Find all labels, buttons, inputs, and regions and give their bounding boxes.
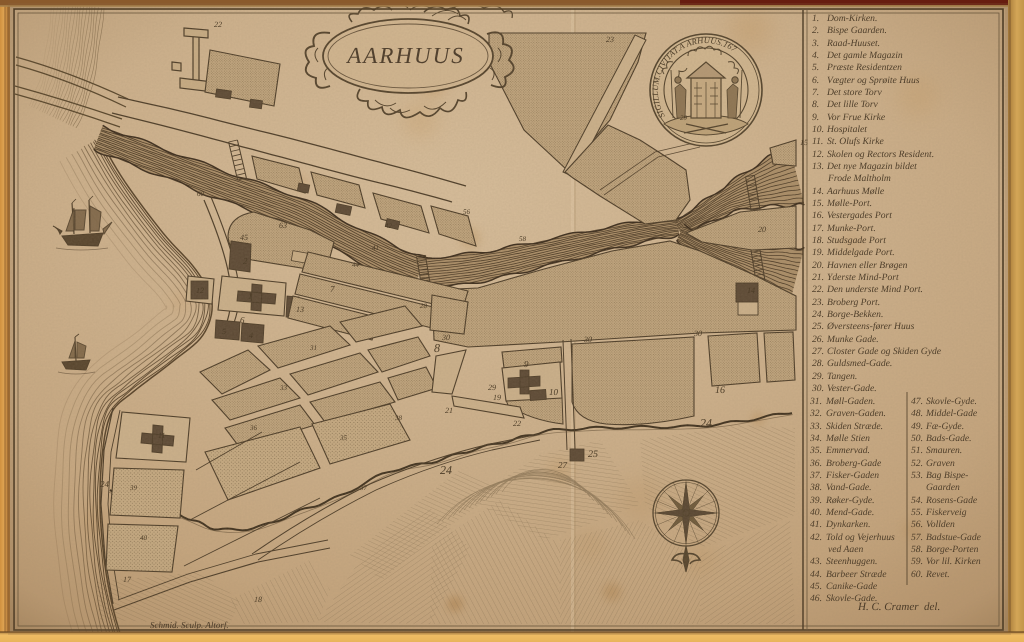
svg-text:49.: 49. xyxy=(911,421,923,432)
svg-text:12.: 12. xyxy=(812,149,824,160)
svg-text:18.: 18. xyxy=(812,235,824,246)
svg-text:44.: 44. xyxy=(810,569,822,580)
svg-text:Munke Gade.: Munke Gade. xyxy=(826,334,879,345)
svg-text:Vand-Gade.: Vand-Gade. xyxy=(826,482,872,493)
svg-text:4.: 4. xyxy=(812,50,819,61)
svg-text:Skiden Stræde.: Skiden Stræde. xyxy=(826,421,883,432)
svg-text:Mend-Gade.: Mend-Gade. xyxy=(825,507,874,518)
svg-text:9.: 9. xyxy=(812,112,819,123)
svg-text:2.: 2. xyxy=(812,25,819,36)
svg-text:Broberg Port.: Broberg Port. xyxy=(827,297,880,308)
svg-text:Havnen eller Brøgen: Havnen eller Brøgen xyxy=(826,260,908,271)
svg-text:23.: 23. xyxy=(812,297,824,308)
svg-text:Aarhuus Mølle: Aarhuus Mølle xyxy=(826,186,885,197)
svg-text:Vor Frue Kirke: Vor Frue Kirke xyxy=(827,112,886,123)
svg-text:1.: 1. xyxy=(812,13,819,24)
svg-text:54.: 54. xyxy=(911,495,923,506)
svg-text:28.: 28. xyxy=(812,358,824,369)
svg-text:Det nye Magazin bildet: Det nye Magazin bildet xyxy=(826,161,917,172)
svg-text:Barbeer Stræde: Barbeer Stræde xyxy=(826,569,887,580)
svg-text:Schmid. Sculp. Altorf.: Schmid. Sculp. Altorf. xyxy=(150,620,229,630)
svg-text:Canike-Gade: Canike-Gade xyxy=(826,581,878,592)
svg-text:Fæ-Gyde.: Fæ-Gyde. xyxy=(925,421,964,432)
svg-text:Vor lil. Kirken: Vor lil. Kirken xyxy=(926,556,981,567)
svg-text:8.: 8. xyxy=(812,99,819,110)
svg-text:55.: 55. xyxy=(911,507,923,518)
svg-text:Guldsmed-Gade.: Guldsmed-Gade. xyxy=(827,358,892,369)
svg-text:48.: 48. xyxy=(911,408,923,419)
svg-text:Yderste Mind-Port: Yderste Mind-Port xyxy=(827,272,899,283)
svg-text:Det lille Torv: Det lille Torv xyxy=(826,99,879,110)
svg-text:Vægter og Sprøite Huus: Vægter og Sprøite Huus xyxy=(827,75,920,86)
svg-text:Røker-Gyde.: Røker-Gyde. xyxy=(825,495,875,506)
svg-text:37.: 37. xyxy=(809,470,822,481)
svg-text:27.: 27. xyxy=(812,346,824,357)
svg-text:7.: 7. xyxy=(812,87,819,98)
svg-text:22.: 22. xyxy=(812,284,824,295)
svg-text:Øversteens-fører Huus: Øversteens-fører Huus xyxy=(826,321,915,332)
svg-text:13.: 13. xyxy=(812,161,824,172)
svg-text:ved Aaen: ved Aaen xyxy=(828,544,863,555)
svg-text:56.: 56. xyxy=(911,519,923,530)
svg-text:Gaarden: Gaarden xyxy=(926,482,960,493)
svg-text:Fisker-Gaden: Fisker-Gaden xyxy=(825,470,879,481)
svg-text:14.: 14. xyxy=(812,186,824,197)
svg-text:Bag Bispe-: Bag Bispe- xyxy=(926,470,968,481)
svg-text:Borge-Porten: Borge-Porten xyxy=(926,544,979,555)
svg-text:Mølle-Port.: Mølle-Port. xyxy=(826,198,872,209)
svg-text:Graven: Graven xyxy=(926,458,955,469)
svg-text:15.: 15. xyxy=(812,198,824,209)
svg-text:Closter Gade og Skiden Gyde: Closter Gade og Skiden Gyde xyxy=(827,346,942,357)
svg-text:Borge-Bekken.: Borge-Bekken. xyxy=(827,309,883,320)
svg-text:Studsgade Port: Studsgade Port xyxy=(827,235,886,246)
svg-text:24.: 24. xyxy=(812,309,824,320)
svg-text:34.: 34. xyxy=(809,433,822,444)
svg-text:Mølle Stien: Mølle Stien xyxy=(825,433,870,444)
svg-text:38.: 38. xyxy=(809,482,822,493)
svg-text:Raad-Huuset.: Raad-Huuset. xyxy=(826,38,880,49)
svg-text:Vollden: Vollden xyxy=(926,519,955,530)
svg-text:H. C. Cramer del.: H. C. Cramer del. xyxy=(857,601,940,613)
svg-text:Skovle-Gyde.: Skovle-Gyde. xyxy=(926,396,977,407)
svg-text:16.: 16. xyxy=(812,210,824,221)
svg-text:40.: 40. xyxy=(810,507,822,518)
svg-text:35.: 35. xyxy=(809,445,822,456)
svg-text:58.: 58. xyxy=(911,544,923,555)
svg-text:Steenhuggen.: Steenhuggen. xyxy=(826,556,877,567)
svg-text:11.: 11. xyxy=(812,136,823,147)
svg-text:St. Olufs Kirke: St. Olufs Kirke xyxy=(827,136,885,147)
svg-text:36.: 36. xyxy=(809,458,822,469)
svg-text:53.: 53. xyxy=(911,470,923,481)
svg-text:31.: 31. xyxy=(809,396,822,407)
svg-text:52.: 52. xyxy=(911,458,923,469)
svg-text:Skolen og Rectors Resident.: Skolen og Rectors Resident. xyxy=(827,149,934,160)
svg-text:41.: 41. xyxy=(810,519,822,530)
svg-text:Revet.: Revet. xyxy=(925,569,950,580)
svg-text:29.: 29. xyxy=(812,371,824,382)
svg-text:Munke-Port.: Munke-Port. xyxy=(826,223,876,234)
svg-text:Middelgade Port.: Middelgade Port. xyxy=(826,247,895,258)
svg-text:Møll-Gaden.: Møll-Gaden. xyxy=(825,396,875,407)
svg-text:39.: 39. xyxy=(809,495,822,506)
svg-text:Told og Vejerhuus: Told og Vejerhuus xyxy=(826,532,895,543)
svg-text:Vestergades Port: Vestergades Port xyxy=(827,210,892,221)
svg-text:43.: 43. xyxy=(810,556,822,567)
svg-text:Tangen.: Tangen. xyxy=(827,371,857,382)
svg-text:59.: 59. xyxy=(911,556,923,567)
svg-text:60.: 60. xyxy=(911,569,923,580)
svg-text:50.: 50. xyxy=(911,433,923,444)
svg-text:47.: 47. xyxy=(911,396,923,407)
svg-text:57.: 57. xyxy=(911,532,923,543)
svg-text:Bads-Gade.: Bads-Gade. xyxy=(926,433,972,444)
svg-text:6.: 6. xyxy=(812,75,819,86)
svg-text:Fiskerveig: Fiskerveig xyxy=(925,507,967,518)
svg-text:3.: 3. xyxy=(811,38,819,49)
svg-text:Hospitalet: Hospitalet xyxy=(826,124,867,135)
svg-text:Badstue-Gade: Badstue-Gade xyxy=(926,532,982,543)
svg-text:Det gamle Magazin: Det gamle Magazin xyxy=(826,50,903,61)
svg-text:Smauren.: Smauren. xyxy=(926,445,962,456)
svg-text:17.: 17. xyxy=(812,223,824,234)
svg-text:Dynkarken.: Dynkarken. xyxy=(825,519,870,530)
svg-text:Middel-Gade: Middel-Gade xyxy=(925,408,978,419)
svg-text:Graven-Gaden.: Graven-Gaden. xyxy=(826,408,886,419)
svg-text:Det store Torv: Det store Torv xyxy=(826,87,882,98)
svg-text:46.: 46. xyxy=(810,593,822,604)
svg-text:Frode Maltholm: Frode Maltholm xyxy=(827,173,891,184)
svg-text:Den underste Mind Port.: Den underste Mind Port. xyxy=(826,284,923,295)
svg-text:33.: 33. xyxy=(809,421,822,432)
svg-text:10.: 10. xyxy=(812,124,824,135)
svg-text:25.: 25. xyxy=(812,321,824,332)
svg-text:Broberg-Gade: Broberg-Gade xyxy=(826,458,882,469)
svg-text:19.: 19. xyxy=(812,247,824,258)
svg-text:5.: 5. xyxy=(812,62,819,73)
svg-text:Bispe Gaarden.: Bispe Gaarden. xyxy=(827,25,887,36)
svg-text:45.: 45. xyxy=(810,581,822,592)
svg-text:Rosens-Gade: Rosens-Gade xyxy=(925,495,978,506)
svg-text:Præste Residentzen: Præste Residentzen xyxy=(826,62,902,73)
svg-text:32.: 32. xyxy=(809,408,822,419)
svg-text:21.: 21. xyxy=(812,272,824,283)
svg-text:Emmervad.: Emmervad. xyxy=(825,445,870,456)
svg-text:30.: 30. xyxy=(811,383,824,394)
svg-text:51.: 51. xyxy=(911,445,923,456)
svg-text:26.: 26. xyxy=(812,334,824,345)
svg-text:20.: 20. xyxy=(812,260,824,271)
svg-text:Vester-Gade.: Vester-Gade. xyxy=(827,383,877,394)
svg-text:Dom-Kirken.: Dom-Kirken. xyxy=(826,13,877,24)
svg-text:42.: 42. xyxy=(810,532,822,543)
